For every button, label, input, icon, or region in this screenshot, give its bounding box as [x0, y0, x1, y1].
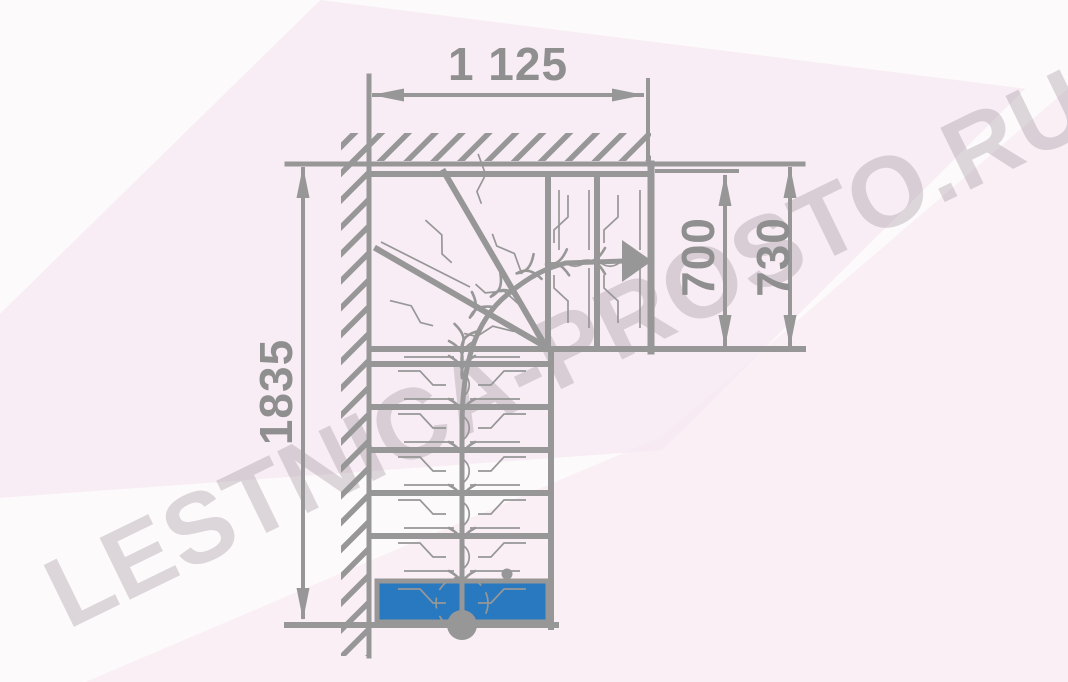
dimension-arrow-icon — [297, 166, 310, 198]
left-wall-hatch — [341, 133, 369, 656]
stair-plan-canvas: LESTNICA-PROSTO.RU — [0, 0, 1068, 682]
walkline-start-circle — [447, 610, 477, 640]
dimension-arrow-icon — [784, 315, 797, 347]
dimension-arrow-icon — [719, 174, 732, 206]
dimension-arrow-icon — [784, 166, 797, 198]
newel-post-dot — [502, 569, 513, 580]
dimension-label-top: 1 125 — [448, 37, 568, 91]
walkline-arc — [464, 546, 469, 568]
top-wall-hatch — [341, 133, 651, 161]
dimension-arrow-icon — [297, 588, 310, 620]
dimension-arrow-icon — [719, 315, 732, 347]
winder-risers — [377, 172, 546, 347]
step-tick-marks — [449, 248, 605, 593]
walkline-arc — [464, 460, 469, 482]
stair-plan-drawing — [0, 0, 1068, 682]
walkline-arc — [464, 503, 469, 525]
dimension-arrow-icon — [372, 89, 404, 102]
wall-hatching — [341, 133, 651, 656]
dimension-label-700: 700 — [671, 217, 725, 297]
walkline-arc — [464, 417, 469, 439]
dimension-label-730: 730 — [746, 217, 800, 297]
dimension-label-height: 1835 — [249, 339, 303, 445]
dimension-arrow-icon — [612, 89, 644, 102]
